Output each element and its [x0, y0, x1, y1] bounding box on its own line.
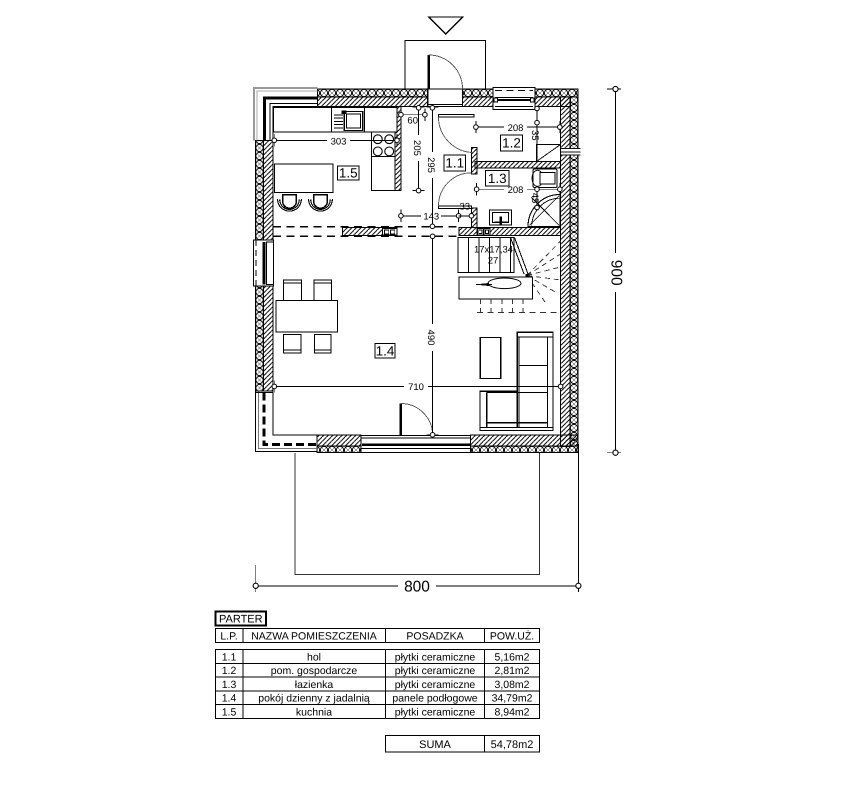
svg-text:303: 303 — [331, 136, 347, 147]
svg-text:295: 295 — [425, 157, 436, 173]
svg-text:34,79m2: 34,79m2 — [492, 693, 533, 705]
svg-text:1.1: 1.1 — [445, 156, 464, 171]
svg-text:1.5: 1.5 — [222, 707, 237, 719]
svg-text:1.1: 1.1 — [222, 651, 237, 663]
svg-text:SUMA: SUMA — [419, 739, 451, 751]
svg-text:łazienka: łazienka — [295, 679, 334, 691]
svg-text:hol: hol — [307, 651, 321, 663]
svg-text:1.5: 1.5 — [339, 166, 358, 181]
svg-text:NAZWA POMIESZCZENIA: NAZWA POMIESZCZENIA — [251, 630, 377, 642]
svg-text:27: 27 — [488, 256, 499, 267]
svg-text:3,08m2: 3,08m2 — [494, 679, 529, 691]
svg-text:płytki ceramiczne: płytki ceramiczne — [395, 665, 476, 677]
svg-text:208: 208 — [508, 185, 524, 196]
svg-text:60: 60 — [407, 116, 418, 127]
svg-text:POW.UŻ.: POW.UŻ. — [490, 629, 534, 642]
svg-text:1.3: 1.3 — [488, 171, 507, 186]
svg-text:1.2: 1.2 — [222, 665, 237, 677]
svg-text:PARTER: PARTER — [219, 613, 263, 625]
svg-text:płytki ceramiczne: płytki ceramiczne — [395, 651, 476, 663]
svg-text:pom. gospodarcze: pom. gospodarcze — [271, 665, 358, 677]
svg-text:2,81m2: 2,81m2 — [494, 665, 529, 677]
svg-text:POSADZKA: POSADZKA — [406, 630, 463, 642]
svg-text:1.3: 1.3 — [222, 679, 237, 691]
svg-text:205: 205 — [411, 140, 422, 156]
svg-text:1.4: 1.4 — [376, 343, 395, 358]
svg-text:płytki ceramiczne: płytki ceramiczne — [395, 707, 476, 719]
svg-text:710: 710 — [408, 382, 424, 393]
svg-text:143: 143 — [423, 212, 439, 223]
svg-text:33: 33 — [460, 201, 471, 212]
svg-text:45: 45 — [529, 193, 540, 204]
svg-text:800: 800 — [404, 579, 430, 596]
svg-text:pokój dzienny z jadalnią: pokój dzienny z jadalnią — [258, 693, 370, 705]
svg-text:900: 900 — [608, 260, 625, 286]
svg-text:1.4: 1.4 — [222, 693, 237, 705]
svg-text:54,78m2: 54,78m2 — [491, 739, 534, 751]
svg-text:L.P.: L.P. — [220, 630, 237, 642]
svg-text:490: 490 — [425, 330, 436, 346]
svg-text:płytki ceramiczne: płytki ceramiczne — [395, 679, 476, 691]
svg-text:208: 208 — [508, 123, 524, 134]
svg-text:1.2: 1.2 — [502, 136, 521, 151]
svg-text:8,94m2: 8,94m2 — [494, 707, 529, 719]
svg-text:5,16m2: 5,16m2 — [494, 651, 529, 663]
svg-text:kuchnia: kuchnia — [296, 707, 332, 719]
svg-text:panele podłogowe: panele podłogowe — [392, 693, 477, 705]
svg-text:35: 35 — [529, 130, 540, 141]
svg-text:17x17,34: 17x17,34 — [474, 245, 513, 256]
